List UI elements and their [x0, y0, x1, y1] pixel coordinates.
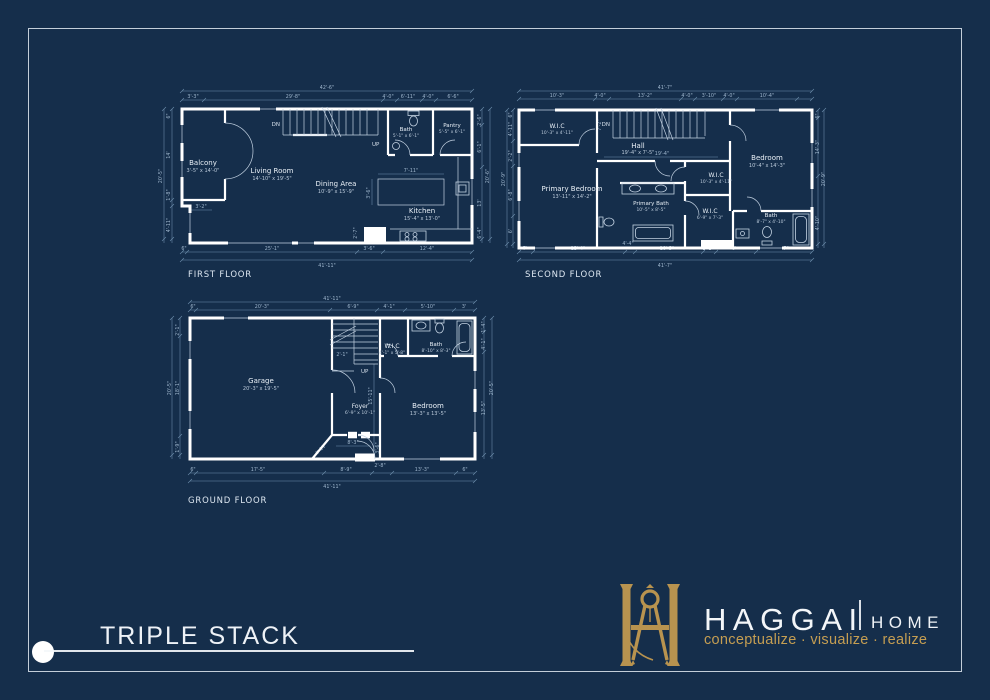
room-label-foyer: Foyer: [352, 403, 369, 410]
room-size-hall: 19'-4" x 7'-5": [621, 150, 654, 156]
stairs-up-label: UP: [361, 369, 369, 375]
dim-text: 6": [166, 113, 172, 118]
dim-text: 18'-1": [175, 381, 181, 395]
dim-text: 4'-11": [166, 218, 172, 232]
second-floor-title: SECOND FLOOR: [525, 270, 602, 280]
room-size-bedroom3: 13'-3" x 13'-5": [410, 411, 446, 417]
dim-text: 42'-6": [320, 85, 334, 91]
dim-text: 12'-4": [420, 246, 434, 252]
dim-text: 20'-9": [501, 172, 507, 186]
brand-separator-line: [859, 600, 861, 630]
room-size-garage: 20'-3" x 19'-5": [243, 386, 279, 392]
dim-text: 20'-6": [485, 169, 491, 183]
dim-text: 20'-3": [255, 304, 269, 310]
dim-text: 2'-8": [374, 463, 385, 469]
dim-text: 29'-8": [286, 94, 300, 100]
room-label-hall: Hall: [631, 142, 644, 150]
room-label-dining: Dining Area: [316, 180, 357, 188]
dim-text: 5'-10": [421, 304, 435, 310]
room-label-wic1: W.I.C: [549, 123, 564, 130]
second-floor-plan: 41'-7" 10'-3" 4'-0" 13'-2" 4'-0" 3'-10" …: [498, 83, 838, 288]
first-floor-room-labels: Balcony 3'-5" x 14'-0" Living Room 14'-1…: [186, 123, 465, 222]
room-label-kitchen: Kitchen: [409, 207, 435, 215]
room-label-bedroom3: Bedroom: [412, 402, 444, 410]
plan-title: TRIPLE STACK: [100, 622, 300, 651]
dim-text: 8'-3": [347, 440, 358, 446]
dim-text: 3'-10": [702, 93, 716, 99]
dim-text: 6': [508, 229, 514, 233]
dim-text: 10'-4": [760, 93, 774, 99]
dim-text: 13'-5": [481, 401, 487, 415]
room-label-wic2: W.I.C: [708, 172, 723, 179]
stairs-up-label: UP: [372, 142, 380, 148]
stairs-dn-label: DN: [272, 122, 280, 128]
dim-text: 20'-9": [821, 172, 827, 186]
dim-text: 6'-1": [477, 141, 483, 152]
dim-text: 25'-1": [265, 246, 279, 252]
room-label-wic3: W.I.C: [702, 208, 717, 215]
room-label-primary-bedroom: Primary Bedroom: [542, 185, 603, 193]
room-label-balcony: Balcony: [189, 159, 217, 167]
dim-text: 4'-0": [422, 94, 433, 100]
second-floor-doors: [579, 125, 761, 215]
dim-text: 4'-0": [594, 93, 605, 99]
dim-text: 20'-5": [167, 381, 173, 395]
first-floor-stairs: DN UP: [272, 107, 380, 148]
title-bullet-dot: [32, 641, 54, 663]
dim-text: 41'-7": [658, 263, 672, 269]
room-size-wic1: 10'-3" x 4'-11": [541, 130, 573, 136]
dim-text: 6": [508, 112, 514, 117]
ground-floor-plan: 41'-11" 6" 20'-3" 6'-9" 4'-1" 5'-10" 3' …: [158, 296, 503, 516]
room-label-bath3: Bath: [430, 342, 443, 348]
dim-text: 2'-1": [336, 352, 347, 358]
room-label-garage: Garage: [248, 377, 274, 385]
ground-floor-title: GROUND FLOOR: [188, 496, 267, 506]
dim-text: 6'-11": [401, 94, 415, 100]
dim-text: 4'-11": [508, 122, 514, 136]
dim-text: 3'-6": [366, 187, 372, 198]
second-floor-stairs: DN: [602, 108, 705, 140]
dim-text: 4'-0": [723, 93, 734, 99]
first-floor-walls: [180, 107, 475, 246]
dim-text: 20'-5": [158, 169, 164, 183]
brand-tagline: conceptualize · visualize · realize: [704, 632, 927, 648]
dim-text: 14': [166, 151, 172, 158]
room-size-wic2: 10'-3" x 4'-11": [700, 179, 732, 185]
dim-text: 4'-10": [815, 216, 821, 230]
dim-text: 6": [815, 113, 821, 118]
room-label-bath: Bath: [400, 127, 413, 133]
room-size-pantry: 5'-5" x 6'-1": [439, 129, 465, 135]
first-floor-plan: 42'-6" 3'-3" 29'-8" 4'-0" 6'-11" 4'-0" 6…: [150, 83, 495, 288]
dim-text: 6'-8": [508, 189, 514, 200]
dim-text: 20'-5": [489, 381, 495, 395]
dim-text: 3': [462, 304, 466, 310]
room-size-bath3: 8'-10" x 8'-3": [422, 348, 451, 354]
room-size-wic3: 6'-9" x 7'-3": [697, 215, 723, 221]
dim-text: 4'-0": [382, 94, 393, 100]
dim-text: 41'-11": [318, 263, 335, 269]
dim-text: 6": [190, 304, 195, 310]
dim-text: 4'-4": [622, 241, 633, 247]
dim-text: 1'-9": [175, 441, 181, 452]
dim-text: 2'-2": [508, 150, 514, 161]
dim-text: 13': [477, 199, 483, 206]
dim-text: 6'-4": [477, 227, 483, 238]
dim-text: 41'-11": [323, 296, 340, 302]
dim-text: 10'-3": [550, 93, 564, 99]
dim-text: 1'-4": [481, 321, 487, 332]
room-size-balcony: 3'-5" x 14'-0": [186, 168, 219, 174]
room-size-primary-bedroom: 13'-11" x 14'-2": [552, 194, 591, 200]
dim-text: 3'-2": [195, 204, 206, 210]
dim-text: 2'-7": [353, 227, 359, 238]
blueprint-sheet: 42'-6" 3'-3" 29'-8" 4'-0" 6'-11" 4'-0" 6…: [0, 0, 990, 700]
dim-text: 15'-11": [368, 387, 374, 404]
dim-text: 2'-1": [175, 324, 181, 335]
dim-text: 19'-4": [655, 151, 669, 157]
dim-text: 4'-1": [481, 338, 487, 349]
dim-text: 6'-6": [447, 94, 458, 100]
dim-text: 6'-9": [347, 304, 358, 310]
dim-text: 4'-0": [681, 93, 692, 99]
room-size-foyer: 6'-9" x 10'-1": [345, 410, 375, 416]
dim-text: 8'-9": [340, 467, 351, 473]
room-label-living: Living Room: [251, 167, 294, 175]
brand-word-home: HOME: [871, 613, 944, 633]
dim-text: 17'-5": [251, 467, 265, 473]
dim-text: 3'-6": [363, 246, 374, 252]
room-label-bath2: Bath: [765, 213, 778, 219]
dim-text: 6": [181, 246, 186, 252]
dim-text: 41'-11": [323, 484, 340, 490]
room-label-pantry: Pantry: [443, 123, 461, 129]
ground-floor-walls: [188, 316, 478, 462]
stairs-dn-label: DN: [602, 122, 610, 128]
room-size-primary-bath: 10'-5" x 8'-5": [637, 207, 666, 213]
dim-text: 3'-3": [187, 94, 198, 100]
room-size-wic: 4'-1" x 5'-8": [379, 350, 405, 356]
room-size-kitchen: 15'-4" x 13'-0": [404, 216, 440, 222]
room-size-bath2: 8'-7" x 4'-10": [757, 219, 786, 225]
compass-monogram-icon: [612, 582, 688, 668]
dim-text: 41'-7": [658, 85, 672, 91]
room-size-bath: 5'-1" x 6'-1": [393, 133, 419, 139]
room-size-living: 14'-10" x 19'-5": [252, 176, 291, 182]
brand-block: HAGGAI HOME conceptualize · visualize · …: [612, 580, 957, 672]
dim-text: 4'-1": [383, 304, 394, 310]
dim-text: 6": [462, 467, 467, 473]
room-label-wic: W.I.C: [384, 343, 399, 350]
room-label-bedroom: Bedroom: [751, 154, 783, 162]
dim-text: 7'-11": [404, 168, 418, 174]
dim-text: 13'-2": [638, 93, 652, 99]
first-floor-title: FIRST FLOOR: [188, 270, 252, 280]
dim-text: 14'-3": [815, 140, 821, 154]
dim-text: 1'-8": [166, 189, 172, 200]
dim-text: 6": [190, 467, 195, 473]
room-label-primary-bath: Primary Bath: [633, 201, 669, 207]
room-size-bedroom: 10'-4" x 14'-3": [749, 163, 785, 169]
room-size-dining: 10'-9" x 15'-9": [318, 189, 354, 195]
dim-text: 2'-6": [477, 114, 483, 125]
dim-text: 13'-3": [415, 467, 429, 473]
